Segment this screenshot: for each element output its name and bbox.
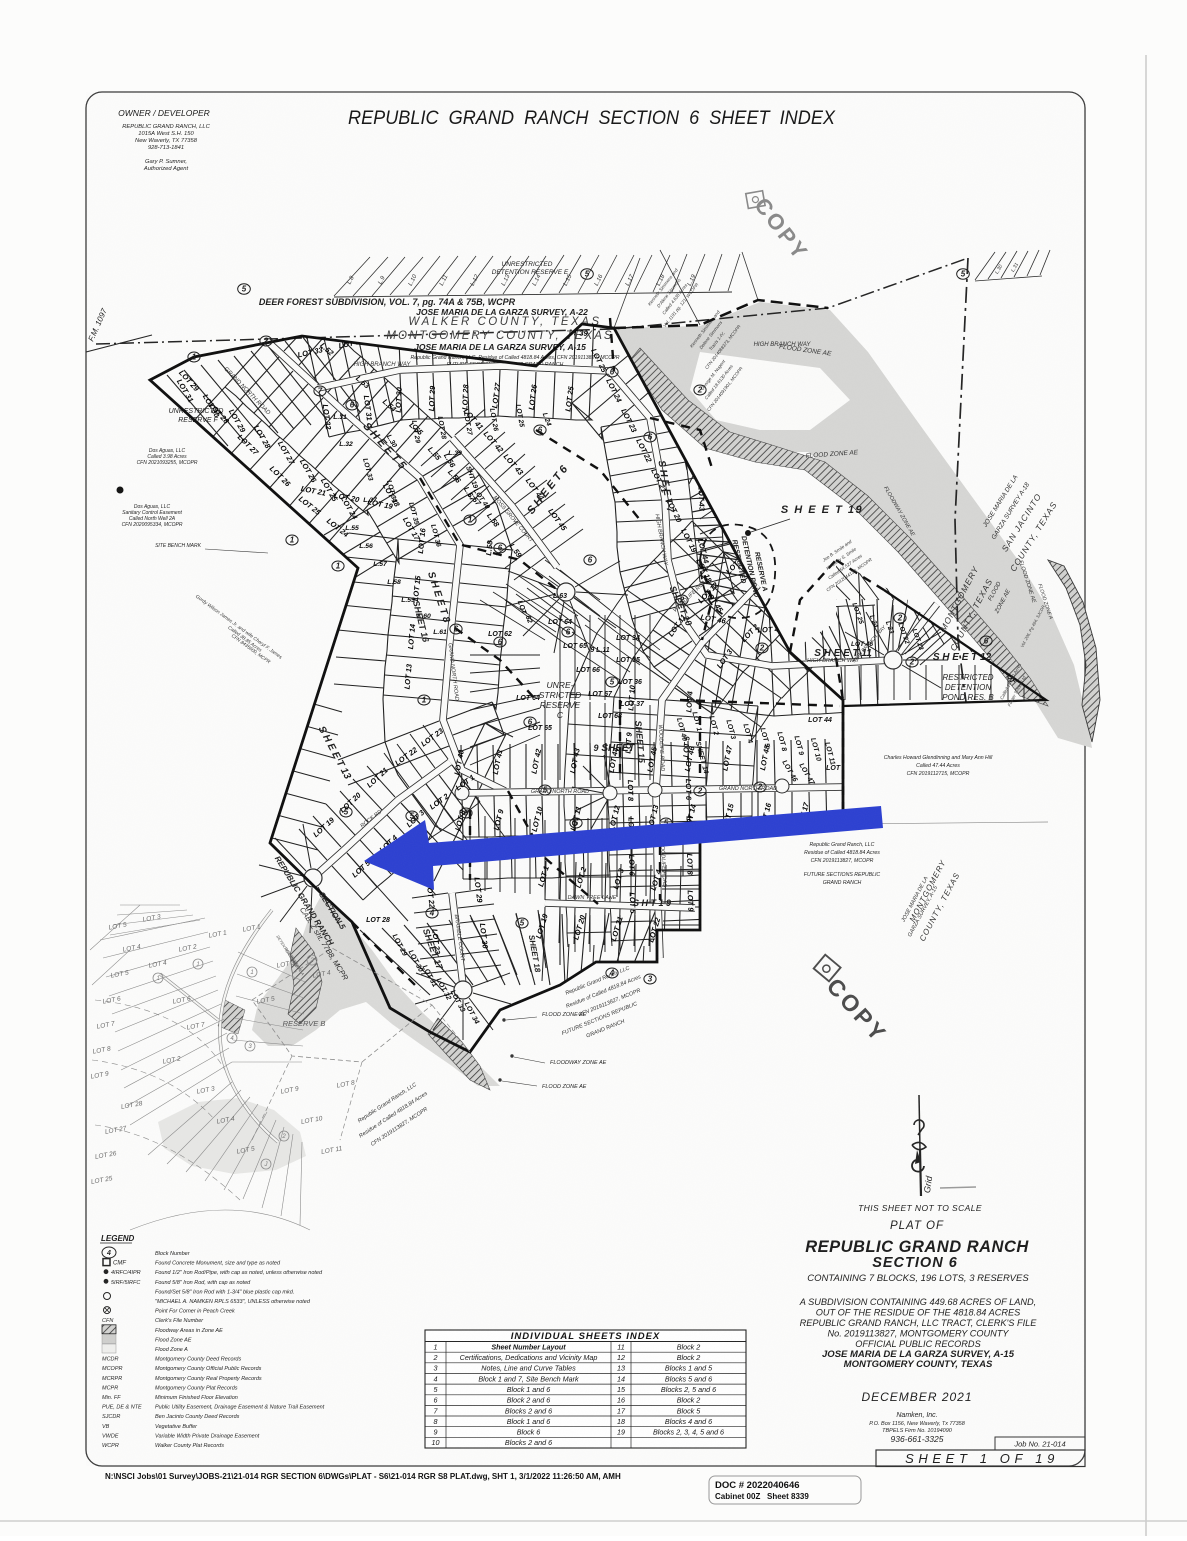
svg-text:N:\NSCI Jobs\01 Survey\JOBS-21: N:\NSCI Jobs\01 Survey\JOBS-21\21-014 RG… bbox=[105, 1472, 621, 1481]
svg-text:Cabinet 00Z Sheet 8339: Cabinet 00Z Sheet 8339 bbox=[715, 1492, 809, 1501]
svg-text:DOC # 2022040646: DOC # 2022040646 bbox=[715, 1480, 800, 1491]
